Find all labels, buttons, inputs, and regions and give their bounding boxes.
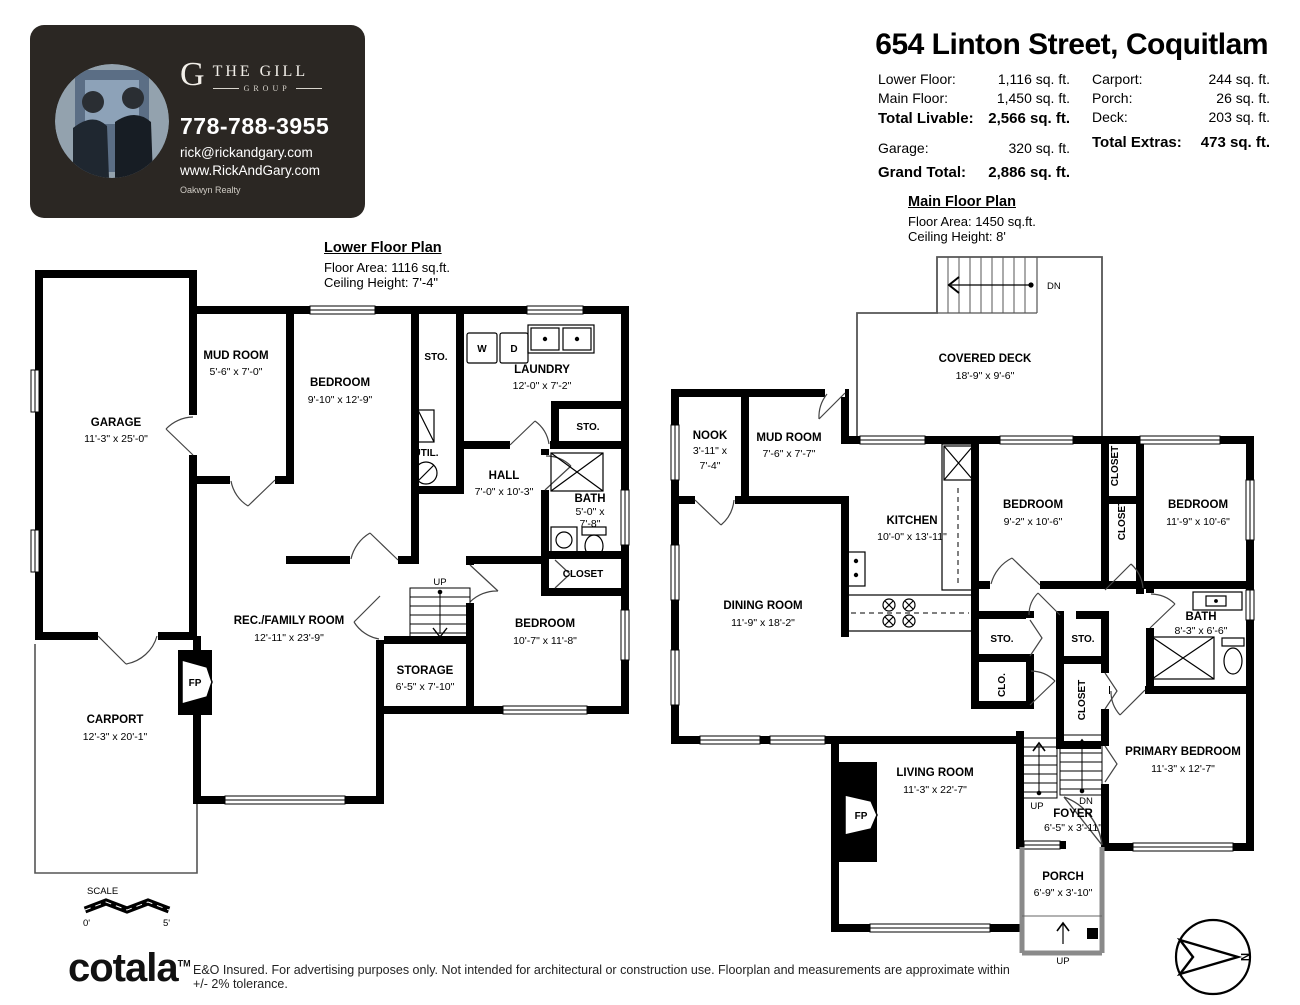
- agent-website: www.RickAndGary.com: [180, 163, 320, 178]
- dryer-label: D: [510, 344, 517, 355]
- gill-group-logo: G THE GILL GROUP: [180, 59, 322, 93]
- compass-north-label: N: [1238, 953, 1250, 961]
- room-label-dining: DINING ROOM: [723, 600, 802, 612]
- room-dims-bath: 8'-3" x 6'-6": [1175, 625, 1228, 637]
- fireplace-label: FP: [189, 678, 202, 689]
- dash-left: [213, 88, 239, 89]
- stat-row: Porch:26 sq. ft.: [1092, 89, 1270, 108]
- room-dims-hall: 7'-0" x 10'-3": [475, 486, 534, 498]
- room-label-laundry: LAUNDRY: [514, 364, 570, 376]
- room-label-porch: PORCH: [1042, 871, 1084, 883]
- agent-phone: 778-788-3955: [180, 113, 329, 140]
- room-label-living: LIVING ROOM: [896, 767, 973, 779]
- stat-row: Main Floor:1,450 sq. ft.: [878, 89, 1070, 108]
- agent-card: G THE GILL GROUP 778-788-3955 rick@ricka…: [30, 25, 365, 218]
- room-dims-mud: 5'-6" x 7'-0": [210, 366, 263, 378]
- room-dims-garage: 11'-3" x 25'-0": [84, 433, 148, 445]
- room-dims-laundry: 12'-0" x 7'-2": [513, 380, 572, 392]
- stat-row-total: Total Livable:2,566 sq. ft.: [878, 108, 1070, 130]
- room-label-garage: GARAGE: [91, 417, 142, 429]
- room-label-bedroom1: BEDROOM: [1003, 499, 1063, 511]
- room-dims-nook2: 7'-4": [700, 460, 721, 472]
- main-plan-title: Main Floor Plan: [908, 195, 1036, 211]
- deck-stairs-arrow: [949, 277, 1033, 293]
- agent-photo: [55, 64, 169, 178]
- compass-icon: N: [1176, 920, 1250, 994]
- room-label-kitchen: KITCHEN: [886, 515, 937, 527]
- room-dims-primary: 11'-3" x 12'-7": [1151, 763, 1215, 775]
- room-label-bedroom1: BEDROOM: [310, 377, 370, 389]
- stat-row-total: Grand Total:2,886 sq. ft.: [878, 162, 1070, 184]
- stat-row-total: Total Extras:473 sq. ft.: [1092, 132, 1270, 154]
- room-dims-mud: 7'-6" x 7'-7": [763, 448, 816, 460]
- room-dims-bedroom1: 9'-10" x 12'-9": [308, 394, 373, 406]
- room-label-mud: MUD ROOM: [756, 432, 821, 444]
- room-label-foyer: FOYER: [1053, 808, 1093, 820]
- gill-monogram-icon: G: [180, 59, 205, 91]
- porch-up-label: UP: [1056, 956, 1069, 967]
- brand-subname: GROUP: [244, 84, 291, 93]
- carport-outline: [35, 644, 197, 873]
- room-dims-carport: 12'-3" x 20'-1": [83, 731, 148, 743]
- deck-dn-label: DN: [1047, 281, 1061, 292]
- room-label-storage: STORAGE: [397, 665, 454, 677]
- room-dims-rec: 12'-11" x 23'-9": [254, 632, 324, 644]
- room-label-bedroom2: BEDROOM: [1168, 499, 1228, 511]
- room-dims-kitchen: 10'-0" x 13'-11": [877, 531, 947, 543]
- washer-label: W: [477, 344, 487, 355]
- room-dims-porch: 6'-9" x 3'-10": [1034, 887, 1093, 899]
- closet1-label: CLOSET: [1110, 446, 1121, 487]
- room-label-bath: BATH: [1185, 611, 1216, 623]
- room-label-bedroom2: BEDROOM: [515, 618, 575, 630]
- room-label-rec: REC./FAMILY ROOM: [234, 615, 345, 627]
- page-title: 654 Linton Street, Coquitlam: [875, 28, 1268, 62]
- room-dims-bath2: 7'-8": [580, 518, 601, 530]
- room-label-bath: BATH: [574, 493, 605, 505]
- stats-right-column: Carport:244 sq. ft. Porch:26 sq. ft. Dec…: [1092, 70, 1270, 154]
- scale-end: 5': [163, 918, 170, 929]
- room-dims-bedroom2: 10'-7" x 11'-8": [513, 635, 577, 647]
- agent-photo-image: [55, 64, 169, 178]
- stairs-up-label: UP: [433, 577, 446, 588]
- room-label-closet: CLOSET: [563, 569, 604, 580]
- main-fireplace-label: FP: [855, 811, 868, 822]
- room-dims-living: 11'-3" x 22'-7": [903, 784, 967, 796]
- main-plan-header: Main Floor Plan Floor Area: 1450 sq.ft. …: [908, 195, 1036, 245]
- disclaimer-text: E&O Insured. For advertising purposes on…: [193, 963, 1023, 991]
- floorplan-page: G THE GILL GROUP 778-788-3955 rick@ricka…: [0, 0, 1300, 1005]
- main-plan-area: Floor Area: 1450 sq.ft.: [908, 214, 1036, 230]
- room-dims-foyer: 6'-5" x 3'-11": [1044, 822, 1102, 834]
- stat-row: Carport:244 sq. ft.: [1092, 70, 1270, 89]
- sto1-label: STO.: [990, 634, 1013, 645]
- room-label-deck: COVERED DECK: [939, 353, 1032, 365]
- stat-row: Lower Floor:1,116 sq. ft.: [878, 70, 1070, 89]
- stat-row: Garage:320 sq. ft.: [878, 139, 1070, 158]
- room-dims-bath1: 5'-0" x: [575, 506, 605, 518]
- stat-row: Deck:203 sq. ft.: [1092, 108, 1270, 127]
- room-label-nook: NOOK: [693, 430, 728, 442]
- scale-start: 0': [83, 918, 90, 929]
- foyer-up-label: UP: [1030, 801, 1043, 812]
- tm-mark: TM: [178, 959, 191, 969]
- room-label-primary: PRIMARY BEDROOM: [1125, 746, 1241, 758]
- agent-brokerage: Oakwyn Realty: [180, 185, 241, 195]
- room-dims-bedroom1: 9'-2" x 10'-6": [1004, 516, 1063, 528]
- room-dims-storage: 6'-5" x 7'-10": [396, 681, 455, 693]
- room-label-sto-top: STO.: [424, 352, 447, 363]
- room-dims-nook1: 3'-11" x: [693, 445, 728, 457]
- stats-left-column: Lower Floor:1,116 sq. ft. Main Floor:1,4…: [878, 70, 1070, 184]
- main-floor-plan: COVERED DECK 18'-9" x 9'-6" DN NOOK 3'-1…: [665, 248, 1275, 998]
- room-dims-deck: 18'-9" x 9'-6": [956, 370, 1015, 382]
- room-label-mud: MUD ROOM: [203, 350, 268, 362]
- room-label-hall: HALL: [489, 470, 520, 482]
- scale-label: SCALE: [87, 886, 118, 897]
- cotala-logo: cotalaTM: [68, 946, 191, 991]
- foyer-stairs: [1022, 735, 1102, 798]
- lower-floor-plan: GARAGE 11'-3" x 25'-0" MUD ROOM 5'-6" x …: [30, 240, 635, 940]
- sto2-label: STO.: [1071, 634, 1094, 645]
- room-label-sto-right: STO.: [576, 422, 599, 433]
- room-dims-bedroom2: 11'-9" x 10'-6": [1166, 516, 1230, 528]
- porch-structure: [1022, 847, 1102, 953]
- lower-stairs: [410, 588, 470, 640]
- brand-name: THE GILL: [213, 63, 309, 80]
- room-dims-dining: 11'-9" x 18'-2": [731, 617, 795, 629]
- clo-label: CLO.: [997, 673, 1008, 697]
- scale-bar: SCALE 0' 5': [83, 886, 170, 929]
- closet2-label: CLOSET: [1117, 500, 1128, 541]
- room-label-util: UTIL.: [414, 448, 439, 459]
- closet3-label: CLOSET: [1077, 680, 1088, 721]
- room-label-carport: CARPORT: [87, 714, 144, 726]
- foyer-dn-label: DN: [1079, 796, 1093, 807]
- main-plan-ceiling: Ceiling Height: 8': [908, 229, 1036, 245]
- agent-email: rick@rickandgary.com: [180, 145, 313, 160]
- dash-right: [296, 88, 322, 89]
